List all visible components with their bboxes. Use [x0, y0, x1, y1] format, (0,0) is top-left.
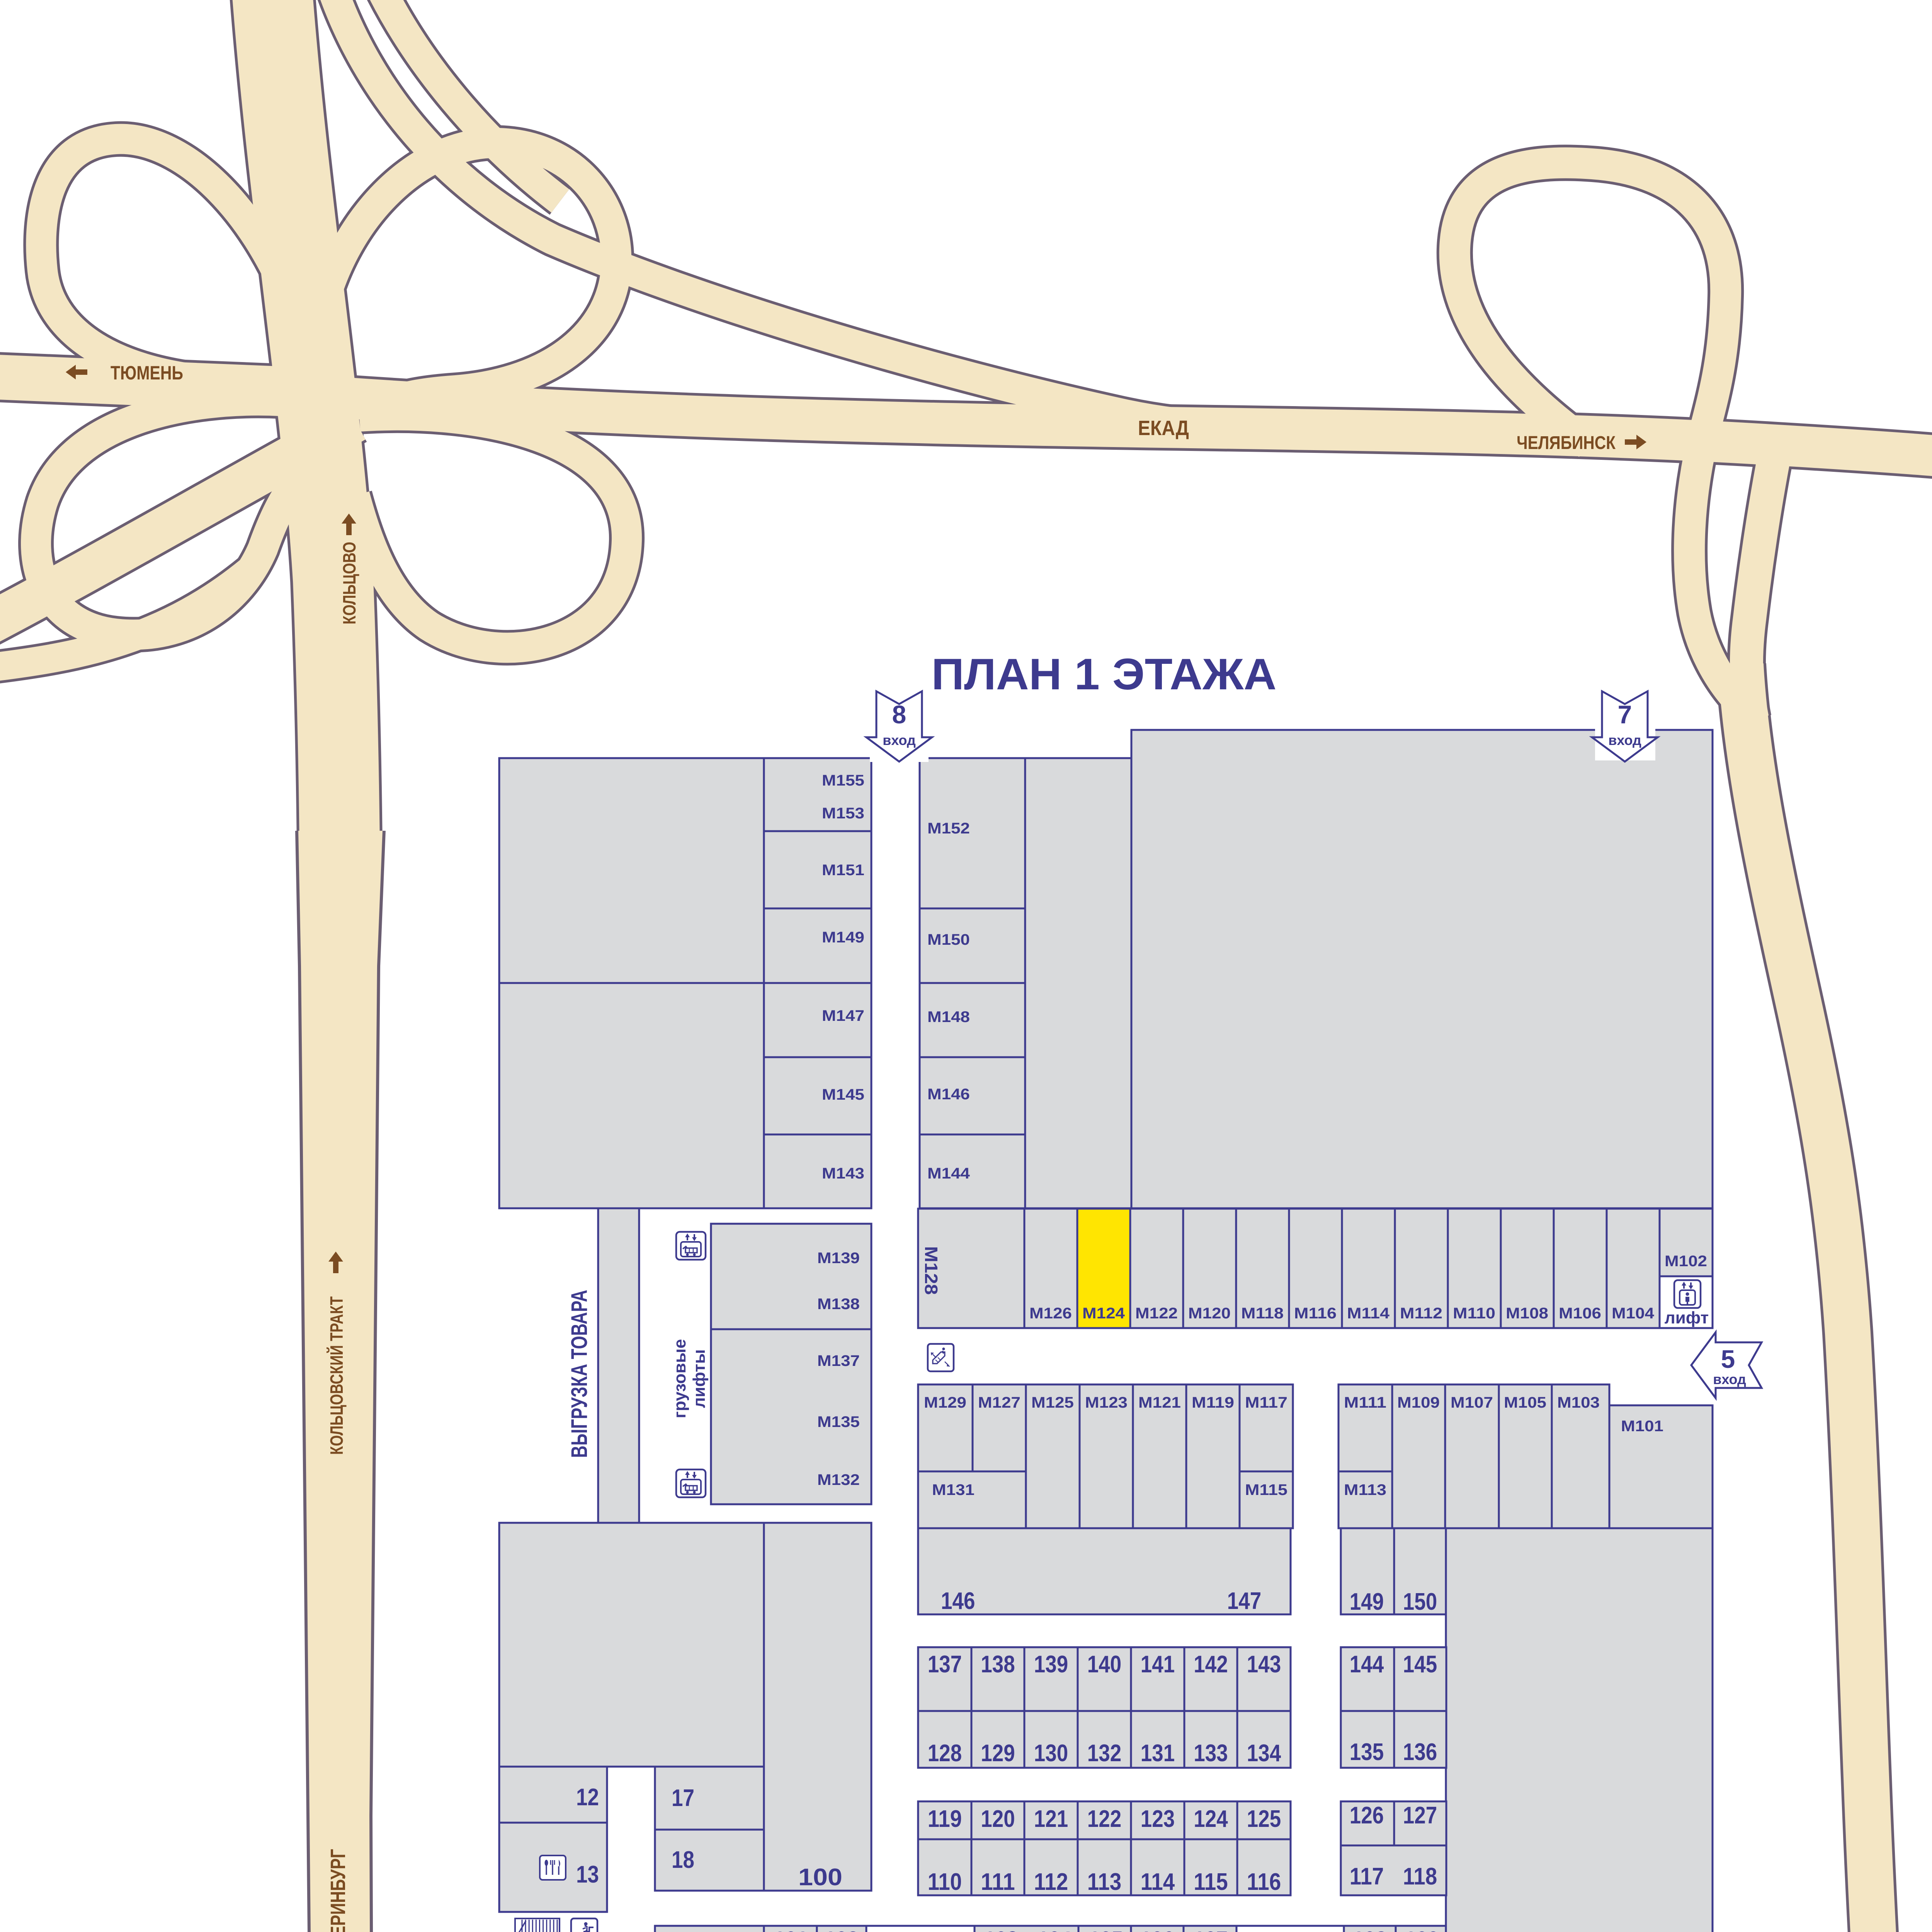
svg-text:124: 124: [1194, 1806, 1228, 1832]
svg-text:147: 147: [1227, 1588, 1262, 1614]
svg-text:118: 118: [1403, 1863, 1437, 1890]
svg-text:125: 125: [1247, 1806, 1281, 1832]
svg-text:142: 142: [1194, 1651, 1228, 1678]
svg-text:120: 120: [981, 1806, 1015, 1832]
svg-text:ЧЕЛЯБИНСК: ЧЕЛЯБИНСК: [1517, 433, 1616, 453]
svg-text:M110: M110: [1453, 1305, 1495, 1322]
svg-text:107: 107: [1194, 1927, 1228, 1932]
svg-text:102: 102: [825, 1927, 859, 1932]
svg-text:ВЫГРУЗКА ТОВАРА: ВЫГРУЗКА ТОВАРА: [567, 1290, 592, 1458]
svg-text:146: 146: [941, 1588, 975, 1614]
svg-text:122: 122: [1087, 1806, 1122, 1832]
svg-text:143: 143: [1247, 1651, 1281, 1678]
svg-text:ТЮМЕНЬ: ТЮМЕНЬ: [111, 362, 183, 384]
svg-text:M124: M124: [1082, 1305, 1125, 1322]
svg-text:ЕКАТЕРИНБУРГ: ЕКАТЕРИНБУРГ: [327, 1849, 350, 1932]
svg-text:M103: M103: [1557, 1394, 1600, 1411]
svg-text:M117: M117: [1245, 1394, 1287, 1411]
svg-text:8: 8: [892, 700, 906, 729]
svg-text:M155: M155: [822, 772, 864, 789]
svg-text:111: 111: [981, 1869, 1015, 1895]
svg-text:M115: M115: [1245, 1481, 1287, 1498]
svg-text:M128: M128: [921, 1246, 941, 1295]
svg-text:M151: M151: [822, 862, 864, 879]
svg-text:M114: M114: [1347, 1305, 1390, 1322]
svg-text:140: 140: [1087, 1651, 1122, 1678]
svg-text:139: 139: [1034, 1651, 1068, 1678]
svg-text:M109: M109: [1397, 1394, 1440, 1411]
svg-text:M150: M150: [927, 931, 970, 948]
svg-text:131: 131: [1141, 1740, 1175, 1767]
svg-text:лифт: лифт: [1665, 1308, 1709, 1327]
svg-text:13: 13: [576, 1861, 599, 1888]
svg-text:M149: M149: [822, 929, 864, 946]
svg-text:грузовые: грузовые: [670, 1339, 689, 1418]
svg-text:18: 18: [672, 1847, 694, 1873]
svg-text:113: 113: [1087, 1869, 1122, 1895]
svg-text:M106: M106: [1559, 1305, 1601, 1322]
svg-text:135: 135: [1350, 1739, 1384, 1765]
svg-text:M107: M107: [1451, 1394, 1493, 1411]
svg-text:2: 2: [886, 1929, 898, 1932]
svg-text:M108: M108: [1506, 1305, 1548, 1322]
svg-text:141: 141: [1141, 1651, 1175, 1678]
svg-text:12: 12: [576, 1784, 599, 1811]
svg-text:M148: M148: [927, 1009, 970, 1026]
svg-text:M125: M125: [1031, 1394, 1074, 1411]
svg-text:M144: M144: [927, 1165, 970, 1182]
svg-text:M131: M131: [932, 1481, 975, 1498]
svg-text:129: 129: [981, 1740, 1015, 1767]
svg-text:M123: M123: [1085, 1394, 1128, 1411]
svg-text:M120: M120: [1188, 1305, 1231, 1322]
svg-text:M126: M126: [1029, 1305, 1072, 1322]
svg-text:123: 123: [1141, 1806, 1175, 1832]
svg-text:133: 133: [1194, 1740, 1228, 1767]
svg-text:M122: M122: [1135, 1305, 1178, 1322]
svg-text:лифты: лифты: [690, 1349, 709, 1408]
svg-text:M111: M111: [1344, 1394, 1386, 1411]
svg-text:вход: вход: [1608, 732, 1641, 748]
svg-text:103: 103: [984, 1927, 1019, 1932]
svg-text:КОЛЬЦОВО: КОЛЬЦОВО: [339, 542, 359, 624]
svg-text:119: 119: [928, 1806, 962, 1832]
svg-text:ПЛАН 1 ЭТАЖА: ПЛАН 1 ЭТАЖА: [932, 650, 1277, 699]
svg-text:M102: M102: [1665, 1253, 1707, 1270]
svg-text:7: 7: [1618, 700, 1632, 729]
svg-text:M132: M132: [817, 1471, 860, 1488]
svg-text:M118: M118: [1241, 1305, 1284, 1322]
svg-text:126: 126: [1350, 1802, 1384, 1829]
svg-text:M139: M139: [817, 1250, 860, 1267]
svg-text:M112: M112: [1400, 1305, 1442, 1322]
svg-text:100: 100: [798, 1864, 842, 1891]
svg-text:136: 136: [1403, 1739, 1437, 1765]
svg-text:127: 127: [1403, 1802, 1437, 1829]
svg-text:144: 144: [1350, 1651, 1384, 1678]
svg-text:M127: M127: [978, 1394, 1020, 1411]
svg-text:вход: вход: [1713, 1371, 1746, 1387]
svg-text:ЕКАД: ЕКАД: [1138, 417, 1189, 440]
svg-text:M152: M152: [927, 820, 970, 837]
svg-text:116: 116: [1247, 1869, 1281, 1895]
svg-text:115: 115: [1194, 1869, 1228, 1895]
svg-text:110: 110: [928, 1869, 962, 1895]
svg-text:M153: M153: [822, 805, 864, 822]
svg-text:108: 108: [1353, 1927, 1387, 1932]
svg-text:вход: вход: [883, 732, 916, 748]
svg-text:M129: M129: [924, 1394, 966, 1411]
svg-text:114: 114: [1141, 1869, 1175, 1895]
svg-text:M104: M104: [1612, 1305, 1655, 1322]
svg-text:M101: M101: [1621, 1418, 1663, 1435]
svg-text:109: 109: [1405, 1927, 1439, 1932]
svg-text:M119: M119: [1192, 1394, 1234, 1411]
svg-text:M145: M145: [822, 1086, 864, 1103]
svg-text:M143: M143: [822, 1165, 864, 1182]
svg-text:M135: M135: [817, 1413, 860, 1430]
svg-text:M138: M138: [817, 1296, 860, 1313]
svg-text:M147: M147: [822, 1007, 864, 1024]
svg-text:5: 5: [1721, 1345, 1735, 1373]
svg-text:КОЛЬЦОВСКИЙ ТРАКТ: КОЛЬЦОВСКИЙ ТРАКТ: [327, 1296, 347, 1455]
svg-text:17: 17: [672, 1785, 694, 1811]
svg-text:132: 132: [1087, 1740, 1122, 1767]
svg-text:138: 138: [981, 1651, 1015, 1678]
svg-text:104: 104: [1037, 1927, 1072, 1932]
svg-text:M113: M113: [1344, 1481, 1386, 1498]
svg-text:2: 2: [1320, 1929, 1331, 1932]
svg-text:112: 112: [1034, 1869, 1068, 1895]
svg-text:105: 105: [1089, 1927, 1123, 1932]
svg-text:M105: M105: [1504, 1394, 1546, 1411]
svg-text:117: 117: [1350, 1863, 1384, 1890]
svg-text:106: 106: [1140, 1927, 1175, 1932]
svg-text:134: 134: [1247, 1740, 1281, 1767]
svg-text:M116: M116: [1294, 1305, 1337, 1322]
svg-text:M121: M121: [1138, 1394, 1181, 1411]
svg-text:128: 128: [928, 1740, 962, 1767]
svg-text:130: 130: [1034, 1740, 1068, 1767]
svg-text:101: 101: [774, 1927, 808, 1932]
svg-text:M137: M137: [817, 1352, 860, 1369]
svg-text:137: 137: [928, 1651, 962, 1678]
svg-text:M146: M146: [927, 1086, 970, 1103]
svg-text:150: 150: [1403, 1588, 1437, 1615]
svg-text:145: 145: [1403, 1651, 1437, 1678]
svg-text:149: 149: [1350, 1588, 1384, 1615]
svg-text:121: 121: [1034, 1806, 1068, 1832]
